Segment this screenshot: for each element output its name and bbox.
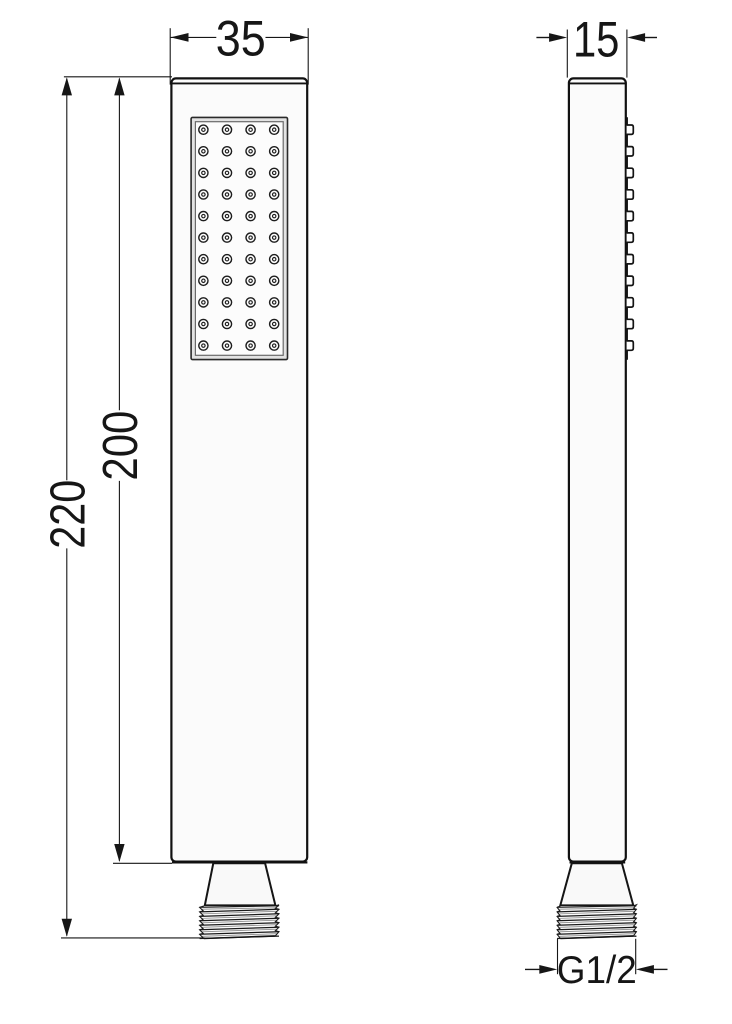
svg-text:220: 220 — [42, 480, 96, 549]
svg-text:G1/2: G1/2 — [557, 949, 637, 992]
svg-text:15: 15 — [573, 12, 620, 68]
svg-text:35: 35 — [216, 11, 266, 67]
svg-text:200: 200 — [94, 411, 148, 481]
